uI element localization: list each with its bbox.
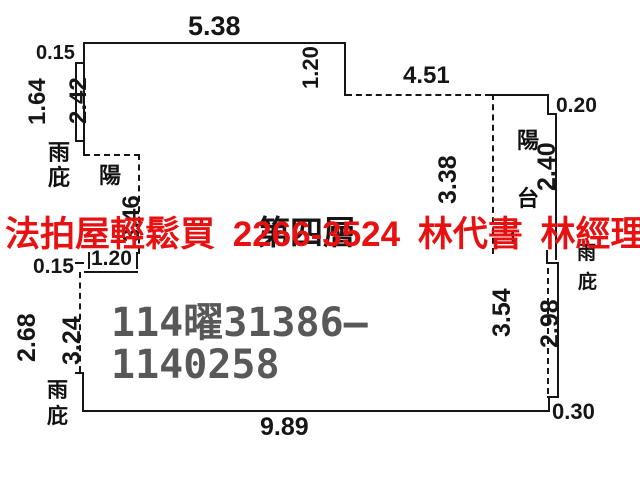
tick-mid-left <box>75 262 84 264</box>
label-canopy-top-left-2: 庇 <box>48 167 70 189</box>
dim-notch-right: 0.20 <box>556 95 597 116</box>
balcony-left-top <box>84 154 140 156</box>
dim-step-top-right: 1.20 <box>300 46 322 89</box>
dim-left-outer-upper: 1.64 <box>26 78 50 125</box>
wall-step-mid-left <box>84 271 138 273</box>
dim-left-inner-lower: 3.24 <box>60 316 85 365</box>
dim-top-width: 5.38 <box>188 13 241 40</box>
wall-top-right <box>346 94 491 96</box>
red-overlay-text: 法拍屋輕鬆買 2266-3524 林代書 林經理 <box>5 217 640 252</box>
dim-right-outer-lower: 2.98 <box>538 299 563 348</box>
label-canopy-bottom-left-1: 雨 <box>47 380 68 401</box>
label-balcony-right-1: 陽 <box>517 130 539 152</box>
watermark-case-number-line1: 114曜31386— <box>111 303 368 343</box>
dim-bottom-width: 9.89 <box>260 415 309 440</box>
dim-left-inner-upper: 2.42 <box>67 77 91 124</box>
wall-top <box>84 42 345 44</box>
label-balcony-right-2: 台 <box>517 188 539 210</box>
wall-right-corner <box>548 396 550 412</box>
dim-offset-bottom-right: 0.30 <box>552 401 595 423</box>
dim-balcony-right-inner: 3.38 <box>436 155 461 204</box>
balcony-right-top <box>490 94 549 96</box>
dim-left-outer-lower: 2.68 <box>15 313 40 362</box>
wall-left-corner <box>82 372 84 412</box>
label-canopy-bottom-left-2: 庇 <box>47 406 68 427</box>
wall-bottom <box>82 410 550 412</box>
floorplan-scan: 5.38 0.15 4.51 0.20 0.15 1.20 9.89 0.30 … <box>0 0 640 480</box>
wall-step-top-right <box>344 42 346 96</box>
label-balcony-left: 陽 <box>99 165 121 187</box>
dim-offset-top-left: 0.15 <box>36 43 75 63</box>
dim-right-inner-lower: 3.54 <box>490 288 515 337</box>
dim-top-right-width: 4.51 <box>403 64 450 88</box>
watermark-case-number-line2: 1140258 <box>111 345 280 385</box>
notch-right-v <box>547 94 549 115</box>
label-canopy-top-left-1: 雨 <box>48 142 70 164</box>
dim-offset-mid-left: 0.15 <box>33 256 74 277</box>
label-canopy-right-2: 庇 <box>578 273 597 292</box>
